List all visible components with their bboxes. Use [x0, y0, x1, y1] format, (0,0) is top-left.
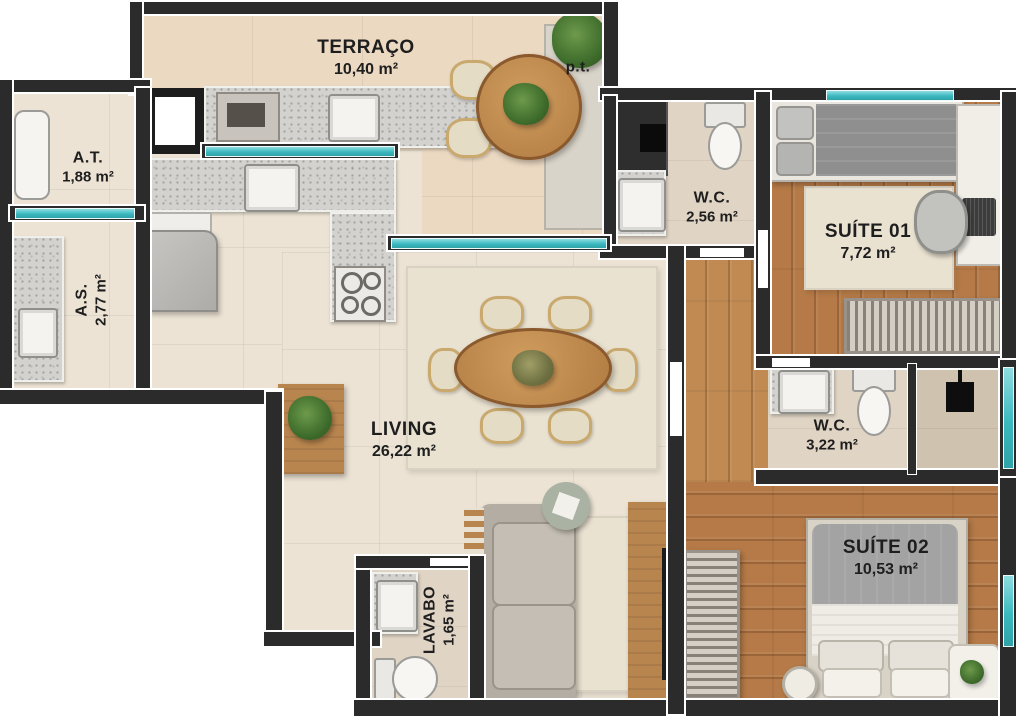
- room-name: LIVING: [371, 418, 437, 442]
- wc-suite-sink: [778, 370, 830, 414]
- toilet-bowl: [392, 656, 438, 702]
- room-area: 10,53 m²: [843, 560, 929, 580]
- wall-segment: [0, 80, 150, 92]
- kitchen-cabinet-box: [146, 88, 204, 154]
- room-name: SUÍTE 01: [825, 220, 911, 244]
- plant-table-centerpiece: [503, 83, 549, 125]
- fridge: [148, 230, 218, 312]
- room-label-suite01: SUÍTE 01 7,72 m²: [825, 220, 911, 264]
- water-heater: [14, 110, 50, 200]
- window-kitchen-counter: [206, 147, 394, 156]
- room-label-terraco: TERRAÇO 10,40 m²: [317, 36, 414, 80]
- door-hall: [670, 362, 682, 436]
- desk: [956, 104, 1008, 266]
- room-name: A.T.: [62, 149, 114, 169]
- room-label-suite02: SUÍTE 02 10,53 m²: [843, 536, 929, 580]
- room-name: A.S.: [73, 274, 93, 326]
- room-label-wc-social: W.C. 2,56 m²: [686, 189, 738, 228]
- wall-segment: [908, 364, 916, 474]
- pouf-pillow: [552, 492, 580, 520]
- bedside-table: [782, 666, 818, 702]
- dining-chair: [548, 408, 592, 444]
- wall-segment: [354, 700, 1016, 716]
- room-name: W.C.: [686, 189, 738, 209]
- wall-segment: [604, 96, 616, 252]
- window-at: [16, 209, 134, 218]
- door-wc-social: [700, 248, 744, 257]
- floor-plan: TERRAÇO 10,40 m² A.T. 1,88 m² A.S. 2,77 …: [0, 0, 1024, 716]
- plant-sideboard: [288, 396, 332, 440]
- room-name: LAVABO: [421, 586, 441, 654]
- room-label-at: A.T. 1,88 m²: [62, 149, 114, 188]
- room-label-living: LIVING 26,22 m²: [371, 418, 437, 462]
- toilet-bowl: [857, 386, 891, 436]
- oven: [216, 92, 280, 142]
- door-suite01: [758, 230, 768, 288]
- wall-segment: [668, 246, 684, 714]
- burner: [341, 296, 359, 314]
- room-area: 2,56 m²: [686, 209, 738, 228]
- room-label-as: A.S. 2,77 m²: [73, 274, 112, 326]
- room-label-lavabo: LAVABO 1,65 m²: [421, 586, 460, 654]
- closet-hanger-icon: [946, 382, 974, 412]
- room-name: W.C.: [806, 417, 858, 437]
- sofa: [480, 504, 576, 704]
- wall-segment: [1002, 92, 1016, 368]
- room-area: 2,77 m²: [93, 274, 112, 326]
- door-lavabo: [430, 558, 468, 566]
- wc-social-sink: [618, 178, 666, 232]
- burner: [361, 296, 381, 316]
- wall-segment: [604, 2, 618, 100]
- room-area: 10,40 m²: [317, 60, 414, 80]
- wall-segment: [130, 2, 618, 14]
- wall-segment: [756, 470, 1016, 484]
- wall-segment: [136, 88, 150, 398]
- room-area: 7,72 m²: [825, 244, 911, 264]
- window-suite02: [1004, 576, 1013, 646]
- wall-segment: [0, 390, 282, 404]
- laundry-sink: [18, 308, 58, 358]
- room-area: 1,65 m²: [441, 586, 460, 654]
- wall-segment: [470, 556, 484, 710]
- burner: [363, 272, 381, 290]
- door-wc-suite: [772, 358, 810, 367]
- closet-rail: [958, 368, 962, 384]
- stove: [334, 266, 386, 322]
- single-bed: [770, 100, 964, 182]
- table-centerpiece: [512, 350, 554, 386]
- window-suite01: [827, 91, 953, 100]
- round-pouf: [542, 482, 590, 530]
- plant-suite02: [960, 660, 984, 684]
- wall-segment: [356, 556, 370, 714]
- window-wc-suite: [1004, 368, 1013, 468]
- room-label-wc-suite: W.C. 3,22 m²: [806, 417, 858, 456]
- wall-segment: [600, 88, 1016, 100]
- annotation-label: p.t.: [566, 59, 591, 78]
- oven-door: [227, 103, 265, 127]
- sink-kitchen: [244, 164, 300, 212]
- toilet-bowl: [708, 122, 742, 170]
- glass-door-terrace: [392, 239, 606, 248]
- bed-blanket: [816, 104, 958, 176]
- room-name: SUÍTE 02: [843, 536, 929, 560]
- suite01-wardrobe: [844, 298, 1006, 354]
- decor-ladder: [464, 508, 484, 560]
- room-area: 1,88 m²: [62, 169, 114, 188]
- wall-segment: [266, 392, 282, 646]
- suite02-wardrobe: [684, 550, 740, 700]
- annotation-pt: p.t.: [566, 59, 591, 78]
- sink-bbq: [328, 94, 380, 142]
- pillow: [776, 142, 814, 176]
- office-chair: [914, 190, 968, 254]
- room-area: 3,22 m²: [806, 437, 858, 456]
- room-name: TERRAÇO: [317, 36, 414, 60]
- lavabo-sink: [376, 580, 418, 632]
- pillow: [822, 668, 882, 698]
- shaft-duct: [640, 124, 666, 152]
- burner: [341, 272, 363, 294]
- dining-chair: [480, 296, 524, 332]
- sofa-cushion: [492, 604, 576, 690]
- pillow: [890, 668, 950, 698]
- wall-segment: [0, 80, 12, 404]
- pillow: [776, 106, 814, 140]
- dining-chair: [480, 408, 524, 444]
- dining-chair: [548, 296, 592, 332]
- room-area: 26,22 m²: [371, 442, 437, 462]
- wall-segment: [600, 246, 770, 258]
- sofa-cushion: [492, 522, 576, 606]
